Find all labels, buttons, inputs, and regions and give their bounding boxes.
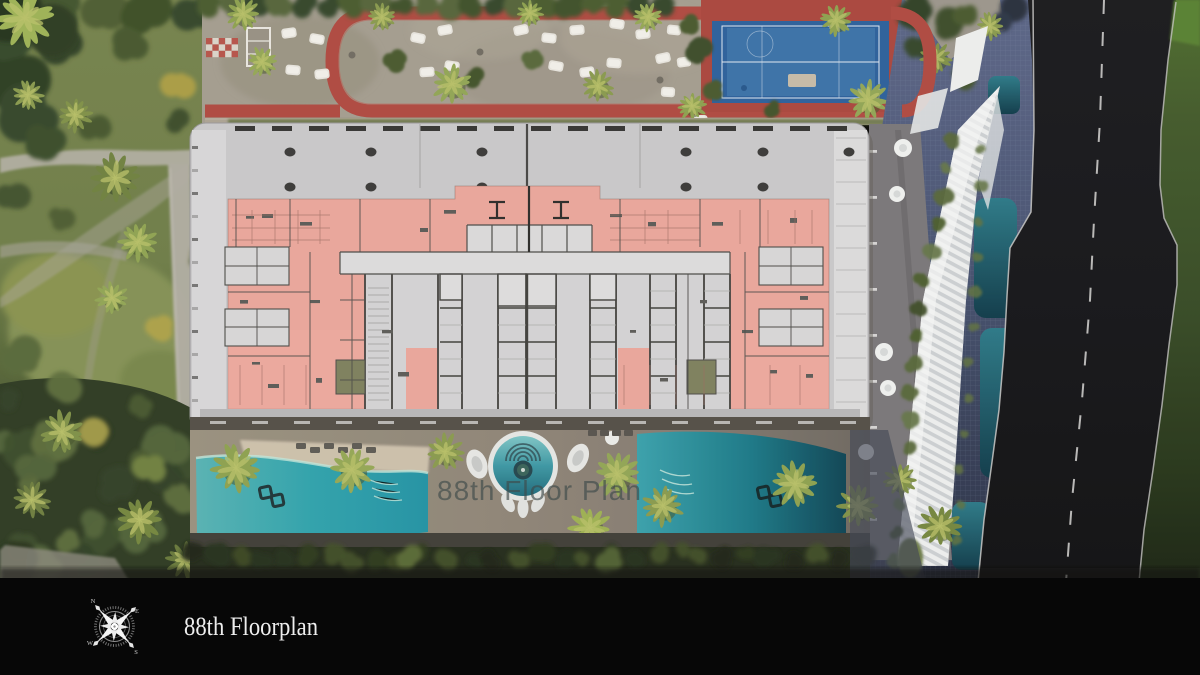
svg-text:N: N bbox=[91, 598, 96, 605]
svg-text:W: W bbox=[87, 640, 94, 647]
svg-text:E: E bbox=[135, 608, 139, 615]
svg-text:S: S bbox=[134, 649, 138, 656]
